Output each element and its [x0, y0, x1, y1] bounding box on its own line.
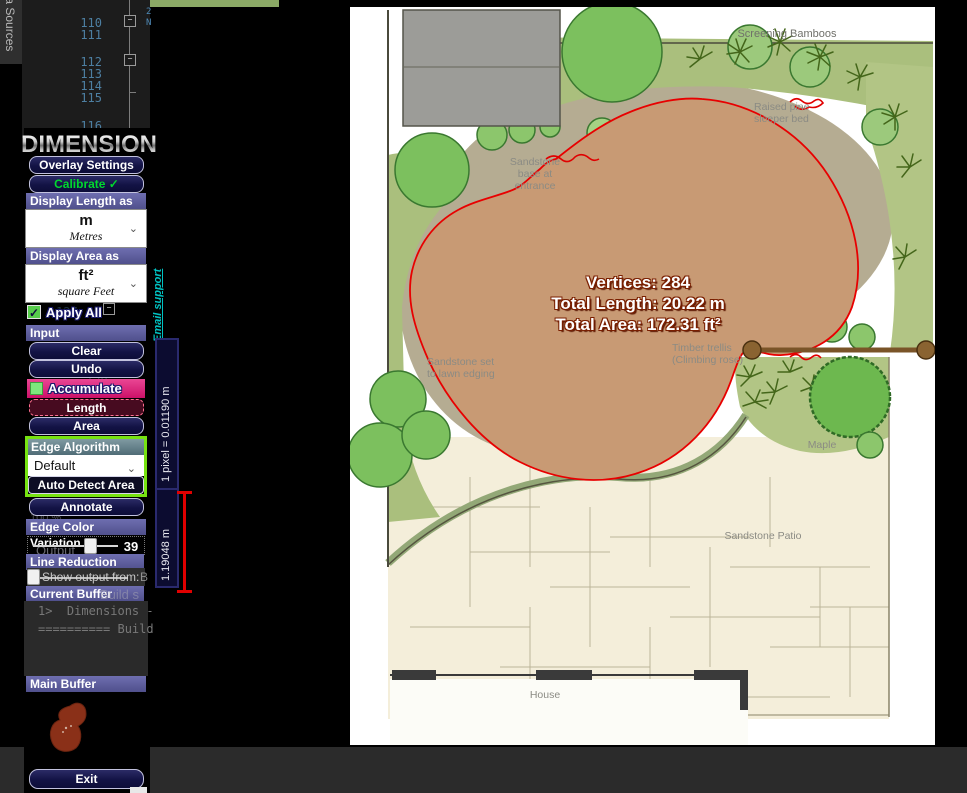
vs-side-strip: ta Sources	[0, 0, 22, 64]
measurement-result-overlay: Vertices: 284 Total Length: 20.22 m Tota…	[498, 272, 778, 335]
display-area-label: Display Area as	[26, 248, 146, 264]
small-shrub	[857, 432, 883, 458]
label-patio: Sandstone Patio	[724, 530, 801, 542]
ruler-scale-label: 1 pixel = 0.01190 m	[160, 387, 172, 483]
label-edging-1: Sandstone set	[427, 356, 494, 368]
vs-data-sources-tab[interactable]: ta Sources	[3, 0, 17, 51]
console-line: 1> Dimensions -	[38, 604, 154, 618]
annotate-button[interactable]: Annotate	[29, 498, 144, 516]
edge-color-variation-value: 39	[118, 539, 144, 554]
maple-tree	[810, 357, 890, 437]
main-buffer-label: Main Buffer	[26, 676, 146, 692]
edge-algorithm-dropdown[interactable]: Default ⌄	[28, 455, 144, 476]
label-raised-bed-1: Raised pine	[754, 101, 810, 113]
label-edging-2: to lawn edging	[427, 368, 495, 380]
line-number: 115	[72, 91, 102, 105]
label-entrance-1: Sandstone	[510, 156, 560, 168]
label-trellis-1: Timber trellis	[672, 342, 732, 354]
dimensions-logo: DIMENSIONS	[21, 131, 157, 159]
ruler-divider	[157, 488, 177, 490]
ghost-dropdown-fragment: B	[140, 570, 148, 584]
display-length-label: Display Length as	[26, 193, 146, 209]
measurement-vertices: Vertices: 284	[498, 272, 778, 293]
clear-button[interactable]: Clear	[29, 342, 144, 360]
accumulate-checkbox[interactable]	[30, 382, 43, 395]
apply-all-label: Apply All	[46, 305, 102, 320]
undo-button[interactable]: Undo	[29, 360, 144, 378]
ghost-build-label: Build s	[100, 587, 139, 602]
measurement-total-area: Total Area: 172.31 ft²	[498, 314, 778, 335]
area-mode-button[interactable]: Area	[29, 417, 144, 435]
screen: ta Sources 110 111 112 113 114 115 116 1…	[0, 0, 967, 793]
label-entrance-2: base at	[518, 168, 553, 180]
red-measure-bar[interactable]	[183, 492, 186, 592]
accumulate-toggle[interactable]: Accumulate	[27, 379, 145, 398]
apply-all-checkbox[interactable]: ✓	[27, 305, 41, 319]
vs-editor-background: 110 111 112 113 114 115 116 117 − − 2 N	[22, 0, 150, 138]
label-entrance-3: entrance	[515, 180, 556, 192]
measurement-total-length: Total Length: 20.22 m	[498, 293, 778, 314]
fold-tick	[129, 92, 136, 93]
length-unit-dropdown[interactable]: m Metres ⌄	[25, 209, 147, 248]
label-maple: Maple	[808, 439, 837, 451]
edge-algorithm-label: Edge Algorithm	[28, 439, 144, 455]
red-measure-bar-bottom-cap	[177, 590, 192, 593]
line-reduction-slider[interactable]: Show output from: B	[27, 568, 145, 586]
building	[403, 10, 560, 126]
slider-handle[interactable]	[27, 569, 40, 585]
label-raised-bed-2: sleeper bed	[754, 113, 809, 125]
fold-collapse-icon[interactable]: −	[124, 54, 136, 66]
area-unit-dropdown[interactable]: ft² square Feet ⌄	[25, 264, 147, 303]
line-number: 111	[72, 28, 102, 42]
chevron-down-icon: ⌄	[129, 277, 138, 290]
console-output: 1> Dimensions - ========== Build	[24, 601, 148, 676]
slider-track[interactable]	[33, 545, 118, 547]
code-fragment: N	[146, 18, 151, 28]
chevron-down-icon: ⌄	[129, 222, 138, 235]
label-trellis-2: (Climbing rose)	[672, 354, 743, 366]
slider-handle[interactable]	[84, 538, 97, 554]
accumulate-label: Accumulate	[48, 381, 122, 396]
label-house: House	[530, 689, 561, 701]
overlay-settings-button[interactable]: Overlay Settings	[29, 156, 144, 174]
edge-color-variation-slider[interactable]: 39	[27, 536, 145, 555]
edge-color-variation-label: Edge Color Variation	[26, 519, 146, 535]
console-line: ========== Build	[38, 622, 154, 636]
code-fragment: 2	[146, 7, 151, 17]
fold-collapse-icon[interactable]: −	[124, 15, 136, 27]
edge-algorithm-group: Edge Algorithm Default ⌄ Auto Detect Are…	[25, 436, 147, 497]
label-screening-bamboos: Screening Bamboos	[737, 28, 837, 40]
window-resize-corner	[130, 787, 147, 793]
chevron-down-icon: ⌄	[127, 459, 136, 480]
length-mode-button[interactable]: Length	[29, 399, 144, 416]
slider-track[interactable]	[40, 577, 128, 579]
exit-button[interactable]: Exit	[29, 769, 144, 789]
fold-collapse-icon: −	[103, 303, 115, 315]
edge-algorithm-value: Default	[34, 458, 75, 473]
input-section-label: Input	[26, 325, 146, 341]
calibrate-button[interactable]: Calibrate ✓	[29, 175, 144, 193]
red-measure-bar-top-cap	[177, 491, 192, 494]
vs-scrollmap-bar	[150, 0, 279, 7]
ruler-segment-label: 1.19048 m	[160, 529, 172, 581]
house-wall	[390, 670, 748, 745]
garden-plan-drawing: Screening Bamboos Raised pine sleeper be…	[350, 7, 935, 745]
buffer-thumbnail-blob	[48, 698, 92, 754]
plan-image-canvas[interactable]: Screening Bamboos Raised pine sleeper be…	[350, 7, 935, 745]
email-support-link[interactable]: Email support	[152, 269, 164, 342]
